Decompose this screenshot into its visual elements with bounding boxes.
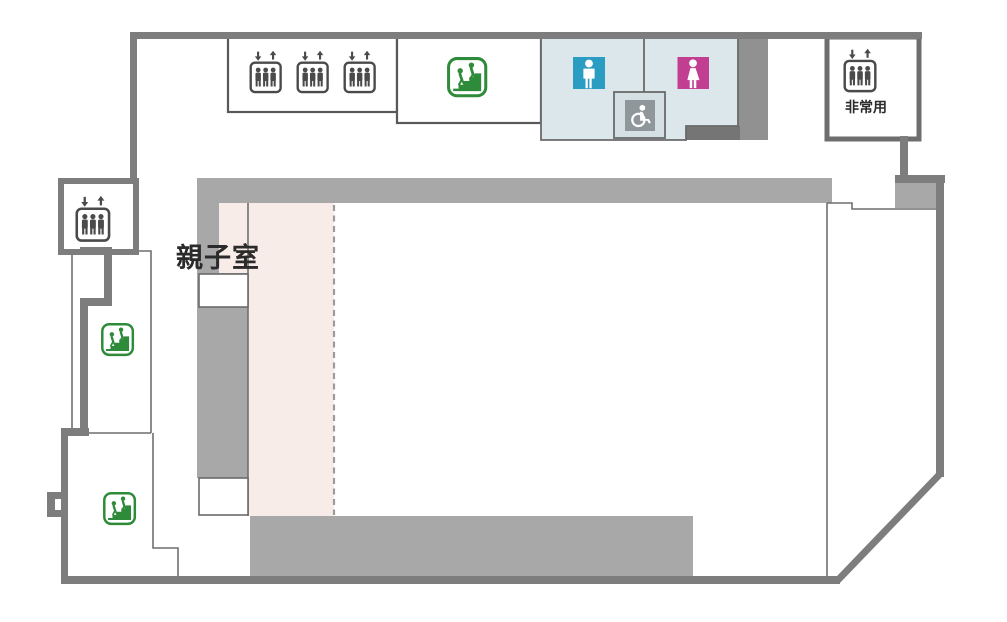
floor-map: 非常用 [0, 0, 1007, 622]
doorway-upper [199, 274, 248, 307]
wall-segment [104, 247, 112, 306]
doorway-lower [199, 478, 248, 515]
wall-segment [895, 175, 945, 183]
hall-top-wall-band [197, 178, 832, 203]
stairs-icon [449, 59, 486, 96]
floor-map-canvas: 非常用 [0, 0, 1007, 622]
emergency-elevator-room: 非常用 [827, 37, 919, 139]
wall-notch [47, 492, 68, 499]
restroom-area [541, 38, 738, 140]
parent-child-room-label: 親子室 [176, 242, 260, 273]
wall-right [936, 180, 944, 477]
wall-bottom [61, 576, 840, 584]
wall-notch [47, 510, 68, 517]
wall-left-lower [61, 428, 68, 578]
stairs-icon [104, 493, 135, 524]
wall-diagonal-corner [838, 474, 940, 580]
parent-child-room [248, 203, 334, 516]
restroom-bottom-step-wall [685, 126, 740, 140]
wall-top [130, 32, 922, 39]
wall-top-left [130, 32, 137, 181]
wall-segment [80, 298, 88, 433]
stairs-icon [102, 324, 133, 355]
lower-stairs-room-outline [153, 433, 178, 577]
emergency-elevator-label: 非常用 [845, 99, 887, 115]
main-hall [827, 203, 936, 576]
right-wall-band [895, 183, 940, 208]
restroom-right-wall-block [738, 38, 768, 140]
hall-bottom-wall-band [250, 516, 693, 578]
